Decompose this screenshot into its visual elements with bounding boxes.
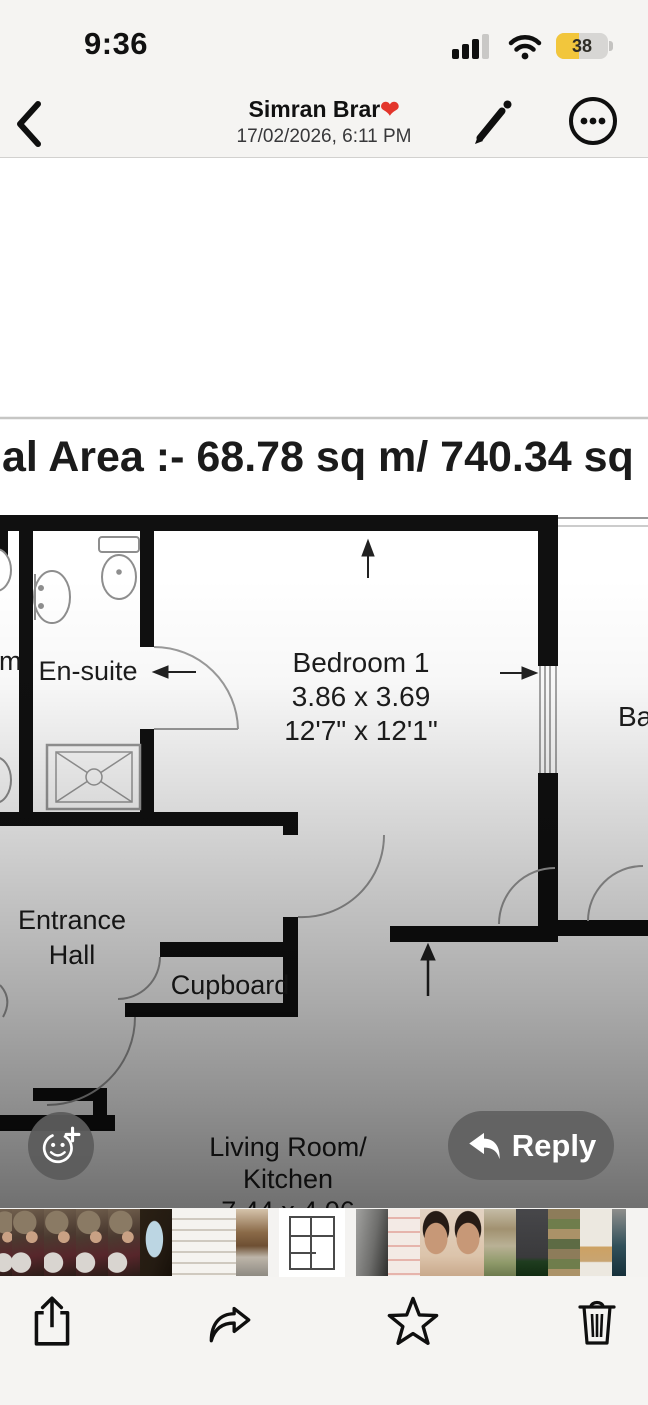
- thumbnail-strip[interactable]: [0, 1208, 648, 1277]
- bedroom-dim-m: 3.86 x 3.69: [292, 681, 431, 712]
- balcony-partial-label: Ba: [618, 701, 648, 732]
- entrance-hall-label-1: Entrance: [18, 905, 126, 935]
- markup-button[interactable]: [470, 96, 516, 146]
- heart-emoji: ❤: [380, 96, 399, 122]
- bedroom-window: [538, 666, 558, 773]
- bedroom-dim-ft: 12'7" x 12'1": [284, 715, 438, 746]
- entrance-hall-label-2: Hall: [49, 940, 96, 970]
- ellipsis-circle-icon: [566, 94, 620, 148]
- floorplan-walls: [0, 515, 648, 1131]
- contact-name: Simran Brar❤: [0, 96, 648, 123]
- reply-label: Reply: [512, 1128, 596, 1164]
- thumbnail-white-doc[interactable]: [172, 1209, 204, 1276]
- forward-arrow-icon: [203, 1296, 257, 1346]
- star-icon: [386, 1295, 440, 1347]
- contact-name-text: Simran Brar: [249, 96, 381, 122]
- photo-timestamp: 17/02/2026, 6:11 PM: [0, 126, 648, 148]
- thumbnail-people[interactable]: [12, 1209, 44, 1276]
- wifi-icon: [506, 32, 544, 60]
- battery-icon: 38: [556, 33, 608, 59]
- trash-icon: [573, 1294, 621, 1348]
- ensuite-shower: [47, 745, 140, 809]
- forward-button[interactable]: [201, 1291, 259, 1351]
- thumbnail-people[interactable]: [76, 1209, 108, 1276]
- battery-nub: [609, 41, 613, 51]
- ensuite-label: En-suite: [38, 656, 137, 686]
- thumbnail-white-doc[interactable]: [204, 1209, 236, 1276]
- thumbnail-light-doc[interactable]: [580, 1209, 612, 1276]
- floorplan-image: al Area :- 68.78 sq m/ 740.34 sq: [0, 158, 648, 1208]
- bedroom-label: Bedroom 1: [293, 647, 430, 678]
- more-options-button[interactable]: [566, 94, 620, 148]
- living-room-label-2: Kitchen: [243, 1164, 333, 1194]
- thumbnail-floorplan-selected[interactable]: [279, 1208, 345, 1277]
- cupboard-label: Cupboard: [171, 970, 290, 1000]
- thumbnail-people[interactable]: [108, 1209, 140, 1276]
- thumbnail-portrait[interactable]: [452, 1209, 484, 1276]
- total-area-text: al Area :- 68.78 sq m/ 740.34 sq: [2, 433, 634, 481]
- bottom-toolbar: [0, 1277, 648, 1405]
- cellular-signal-icon: [452, 32, 494, 60]
- smiley-plus-icon: [40, 1125, 82, 1167]
- reply-button[interactable]: Reply: [448, 1111, 614, 1180]
- status-bar: 9:36 38: [0, 0, 648, 60]
- pencil-icon: [470, 96, 516, 146]
- nav-bar: Simran Brar❤ 17/02/2026, 6:11 PM: [0, 60, 648, 158]
- ensuite-sink: [34, 571, 70, 623]
- living-room-dim-partial: 7.44 x 4.06: [221, 1196, 355, 1208]
- ensuite-toilet: [99, 537, 139, 599]
- delete-button[interactable]: [568, 1291, 626, 1351]
- thumbnail-people-edge[interactable]: [0, 1209, 12, 1276]
- share-icon: [27, 1293, 77, 1349]
- battery-percent: 38: [556, 33, 608, 59]
- tapback-reaction-button[interactable]: [28, 1112, 94, 1180]
- share-button[interactable]: [23, 1291, 81, 1351]
- thumbnail-dark-blue-doc[interactable]: [140, 1209, 172, 1276]
- reply-arrow-icon: [466, 1128, 502, 1164]
- left-room-partial-fixtures: [0, 549, 11, 803]
- status-time: 9:36: [84, 26, 148, 62]
- thumbnail-dark-doc[interactable]: [516, 1209, 548, 1276]
- thumbnail-green-doc[interactable]: [484, 1209, 516, 1276]
- thumbnail-stripe-doc[interactable]: [548, 1209, 580, 1276]
- favorite-button[interactable]: [384, 1291, 442, 1351]
- thumbnail-pink-doc[interactable]: [388, 1209, 420, 1276]
- thumbnail-people[interactable]: [44, 1209, 76, 1276]
- photo-content[interactable]: al Area :- 68.78 sq m/ 740.34 sq: [0, 158, 648, 1208]
- thumbnail-portrait[interactable]: [420, 1209, 452, 1276]
- thumbnail-room-photo[interactable]: [236, 1209, 268, 1276]
- thumbnail-teal-edge[interactable]: [612, 1209, 626, 1276]
- thumbnail-gray-doc[interactable]: [356, 1209, 388, 1276]
- left-room-partial-label: m: [0, 646, 22, 676]
- photo-viewer-screen: 9:36 38: [0, 0, 648, 1405]
- conversation-header[interactable]: Simran Brar❤ 17/02/2026, 6:11 PM: [0, 96, 648, 148]
- living-room-label-1: Living Room/: [209, 1132, 367, 1162]
